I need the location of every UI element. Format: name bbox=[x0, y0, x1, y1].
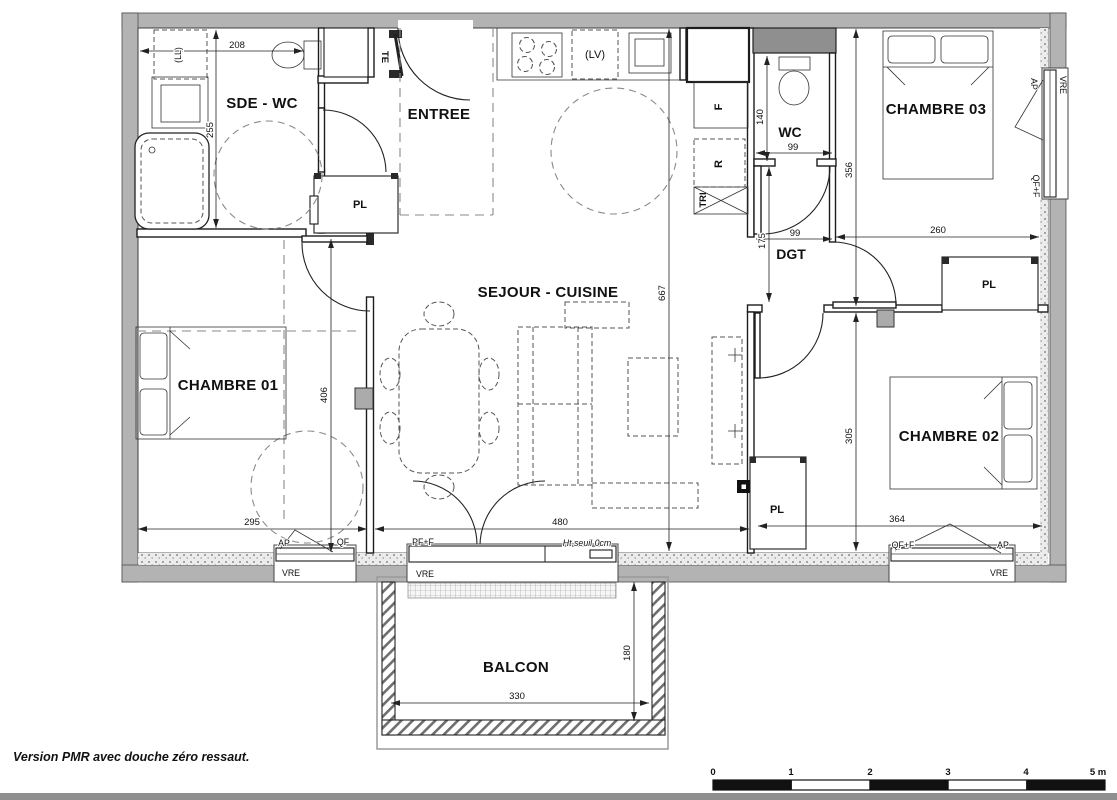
windows bbox=[274, 68, 1068, 582]
room-label-chambre01: CHAMBRE 01 bbox=[178, 377, 279, 394]
page-bottom-edge bbox=[0, 793, 1117, 800]
dining-set bbox=[380, 302, 499, 499]
dimension-lines bbox=[138, 29, 1042, 721]
floor-plan-svg: 208 255 140 99 356 99 175 260 667 406 29… bbox=[0, 0, 1117, 800]
room-label-chambre03: CHAMBRE 03 bbox=[886, 101, 987, 118]
scale-tick-1: 1 bbox=[788, 767, 794, 778]
window2-vre-label: VRE bbox=[990, 568, 1008, 578]
floor-plan-page: 208 255 140 99 356 99 175 260 667 406 29… bbox=[0, 0, 1117, 800]
scale-tick-0: 0 bbox=[710, 767, 715, 778]
dim-wc-largeur: 99 bbox=[788, 142, 799, 153]
dim-aile-droite: 356 bbox=[844, 162, 855, 178]
appliance-label-lave-linge: (LL) bbox=[173, 47, 183, 63]
te-closet-box bbox=[324, 28, 368, 77]
dim-sde-largeur: 208 bbox=[229, 40, 245, 51]
dim-sejour-hauteur: 667 bbox=[657, 285, 668, 301]
dim-chambre03-largeur: 260 bbox=[930, 225, 946, 236]
balcony-pff-label: PF+F bbox=[412, 537, 434, 547]
dim-chambre02-hauteur: 305 bbox=[844, 428, 855, 444]
turning-circle-chambre01 bbox=[251, 431, 363, 543]
chambre01-door-arc bbox=[302, 243, 370, 311]
turning-circle-entree bbox=[551, 88, 677, 214]
chambre03-door-leaf bbox=[833, 302, 896, 308]
balcony-door-arc-right bbox=[480, 481, 545, 546]
wc-fixtures bbox=[779, 57, 810, 105]
balcony-door-arc-left bbox=[413, 481, 477, 545]
room-label-entree: ENTREE bbox=[408, 106, 471, 123]
window3-ap-label: AP bbox=[1029, 78, 1039, 90]
balcony-seuil-label: Ht seuil 0cm bbox=[563, 538, 611, 548]
appliance-label-lave-vaisselle: (LV) bbox=[585, 49, 605, 61]
dim-wc-profondeur: 140 bbox=[755, 109, 766, 125]
pl-sejour-box bbox=[750, 457, 806, 549]
opening-labels: AP QF VRE PF+F Ht seuil 0cm VRE QF+F AP … bbox=[278, 76, 1068, 579]
scale-tick-2: 2 bbox=[867, 767, 872, 778]
room-label-dgt: DGT bbox=[776, 246, 806, 262]
chambre03-door-arc bbox=[833, 242, 896, 305]
sofa-set bbox=[518, 302, 742, 508]
dim-dgt-longueur: 175 bbox=[757, 233, 768, 249]
chambre01-door-leaf bbox=[302, 236, 367, 242]
wall-pier bbox=[355, 388, 373, 409]
room-label-sde-wc: SDE - WC bbox=[226, 95, 298, 112]
window1-ap-label: AP bbox=[278, 538, 290, 548]
tv-unit bbox=[712, 337, 742, 464]
window1-qf-label: QF bbox=[337, 537, 350, 547]
appliance-label-frigo: F bbox=[713, 103, 725, 110]
kitchen-fixtures bbox=[497, 28, 749, 214]
room-label-chambre02: CHAMBRE 02 bbox=[899, 428, 1000, 445]
shower bbox=[135, 133, 209, 229]
chambre02-door-leaf bbox=[755, 313, 760, 378]
appliance-label-tri: TRI bbox=[698, 192, 709, 207]
appliance-label-rangement: R bbox=[713, 160, 725, 168]
closet-label-pl-chambre02: PL bbox=[982, 279, 996, 291]
sde-fixtures bbox=[135, 30, 321, 229]
coffee-table bbox=[628, 358, 678, 436]
pmr-note: Version PMR avec douche zéro ressaut. bbox=[13, 750, 249, 764]
room-label-sejour: SEJOUR - CUISINE bbox=[478, 284, 619, 301]
wall-pier bbox=[877, 310, 894, 327]
dim-balcon-profondeur: 180 bbox=[622, 645, 633, 661]
window3-qff-label: QF+F bbox=[1031, 175, 1041, 198]
closet-label-te: TE bbox=[379, 51, 390, 63]
wc-door-arc bbox=[762, 166, 830, 234]
dim-sejour-largeur: 480 bbox=[552, 517, 568, 528]
sde-door-arc bbox=[323, 110, 386, 172]
closet-label-pl-sejour: PL bbox=[770, 504, 784, 516]
dim-chambre01-largeur: 295 bbox=[244, 517, 260, 528]
wc-door-leaf bbox=[754, 166, 761, 234]
sde-door-leaf bbox=[319, 108, 325, 172]
dim-sde-profondeur: 255 bbox=[205, 122, 216, 138]
chambre02-door-arc bbox=[758, 313, 823, 378]
balcony-threshold-sill bbox=[408, 583, 616, 598]
window2-ap-label: AP bbox=[997, 540, 1009, 550]
scale-unit-label: 5 m bbox=[1090, 767, 1106, 778]
scale-bar: 0 1 2 3 4 5 m bbox=[710, 767, 1106, 790]
dim-chambre01-hauteur: 406 bbox=[319, 387, 330, 403]
duct-block bbox=[753, 28, 836, 53]
dim-dgt-largeur: 99 bbox=[790, 228, 801, 239]
entrance-door-arc bbox=[398, 28, 470, 100]
dim-chambre02-largeur: 364 bbox=[889, 514, 905, 525]
scale-tick-3: 3 bbox=[945, 767, 950, 778]
hob bbox=[512, 33, 562, 77]
toilet-wc-tank bbox=[779, 57, 810, 70]
scale-tick-4: 4 bbox=[1023, 767, 1029, 778]
window2-qff-label: QF+F bbox=[892, 540, 915, 550]
room-label-wc: WC bbox=[778, 124, 801, 140]
window3-vre-label: VRE bbox=[1058, 76, 1068, 94]
room-label-balcon: BALCON bbox=[483, 659, 549, 676]
window1-vre-label: VRE bbox=[282, 568, 300, 578]
closet-label-pl-entree: PL bbox=[353, 199, 367, 211]
toilet-wc-bowl bbox=[779, 71, 809, 105]
toilet-sde-bowl bbox=[272, 42, 304, 68]
tall-unit bbox=[687, 28, 749, 82]
balcony-vre-label: VRE bbox=[416, 569, 434, 579]
dim-balcon-largeur: 330 bbox=[509, 691, 525, 702]
turning-circle-sde bbox=[214, 121, 322, 229]
